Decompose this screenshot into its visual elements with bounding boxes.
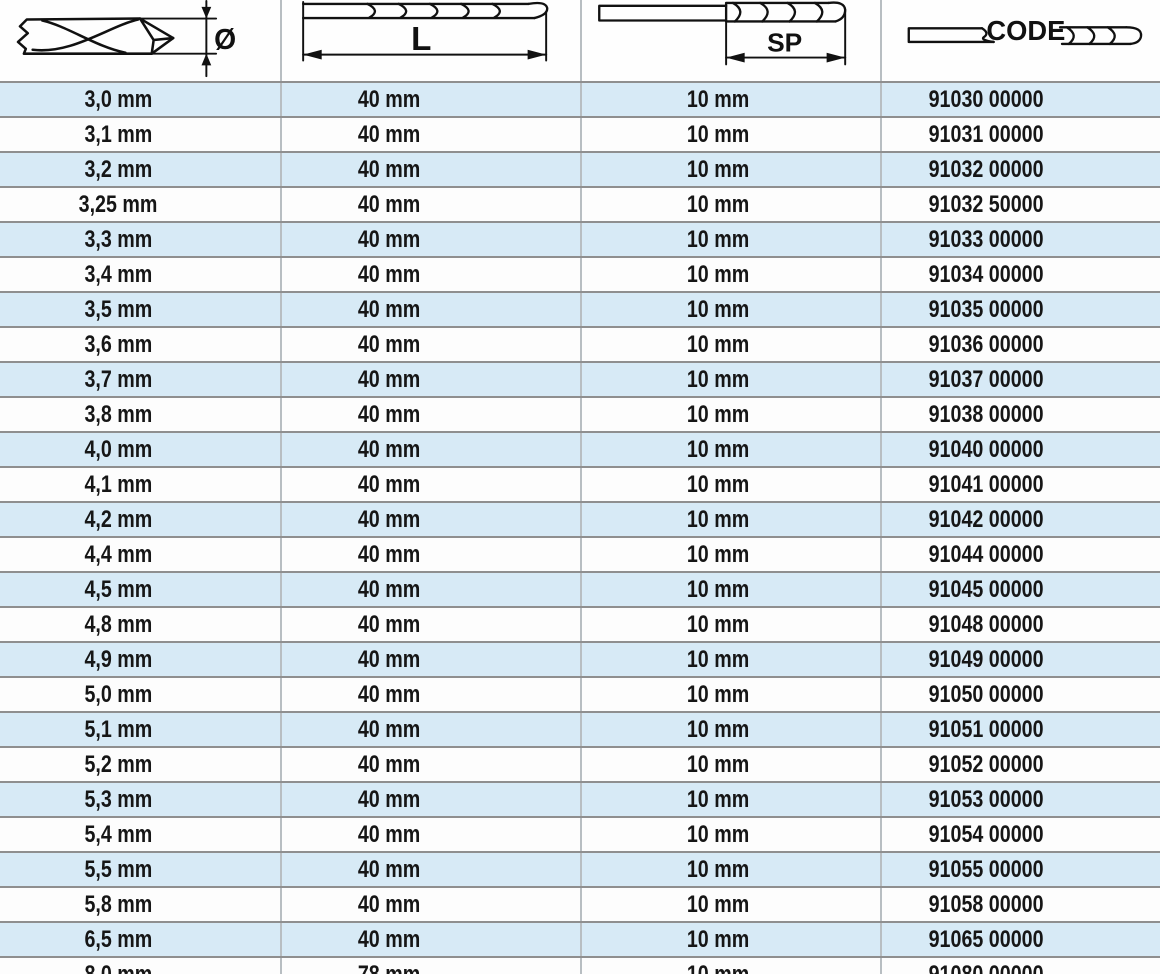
spiral-cell: 10 mm — [580, 573, 880, 606]
diameter-cell: 5,4 mm — [0, 818, 280, 851]
diameter-value: 4,5 mm — [84, 576, 152, 604]
diameter-value: 3,3 mm — [84, 226, 152, 254]
code-cell: 91042 00000 — [880, 503, 1160, 536]
diameter-cell: 8,0 mm — [0, 958, 280, 974]
diameter-cell: 4,1 mm — [0, 468, 280, 501]
code-cell: 91054 00000 — [880, 818, 1160, 851]
code-value: 91036 00000 — [929, 331, 1044, 359]
table-row: 3,8 mm 40 mm 10 mm 91038 00000 — [0, 398, 1160, 433]
spiral-cell: 10 mm — [580, 398, 880, 431]
spiral-value: 10 mm — [687, 786, 749, 814]
spiral-cell: 10 mm — [580, 538, 880, 571]
spiral-cell: 10 mm — [580, 118, 880, 151]
code-cell: 91035 00000 — [880, 293, 1160, 326]
spiral-cell: 10 mm — [580, 363, 880, 396]
dimension-arrow-left — [303, 50, 322, 60]
code-value: 91054 00000 — [929, 821, 1044, 849]
diameter-cell: 3,7 mm — [0, 363, 280, 396]
code-cell: 91040 00000 — [880, 433, 1160, 466]
length-cell: 40 mm — [280, 678, 580, 711]
spiral-value: 10 mm — [687, 156, 749, 184]
table-row: 3,1 mm 40 mm 10 mm 91031 00000 — [0, 118, 1160, 153]
diameter-cell: 3,6 mm — [0, 328, 280, 361]
table-row: 3,6 mm 40 mm 10 mm 91036 00000 — [0, 328, 1160, 363]
drill-length-drawing: L — [282, 0, 580, 81]
diameter-cell: 3,25 mm — [0, 188, 280, 221]
code-value: 91058 00000 — [929, 891, 1044, 919]
table-row: 4,1 mm 40 mm 10 mm 91041 00000 — [0, 468, 1160, 503]
code-cell: 91044 00000 — [880, 538, 1160, 571]
drill-bit-catalog-table: Ø L — [0, 0, 1160, 974]
column-header-code: CODE — [880, 0, 1160, 81]
code-cell: 91048 00000 — [880, 608, 1160, 641]
diameter-value: 5,1 mm — [84, 716, 152, 744]
code-value: 91049 00000 — [929, 646, 1044, 674]
diameter-value: 3,6 mm — [84, 331, 152, 359]
length-cell: 40 mm — [280, 223, 580, 256]
spiral-cell: 10 mm — [580, 258, 880, 291]
spiral-value: 10 mm — [687, 401, 749, 429]
length-cell: 40 mm — [280, 398, 580, 431]
diameter-value: 3,5 mm — [84, 296, 152, 324]
table-row: 3,2 mm 40 mm 10 mm 91032 00000 — [0, 153, 1160, 188]
code-value: 91051 00000 — [929, 716, 1044, 744]
code-value: 91032 50000 — [929, 191, 1044, 219]
table-row: 5,0 mm 40 mm 10 mm 91050 00000 — [0, 678, 1160, 713]
diameter-cell: 5,2 mm — [0, 748, 280, 781]
length-cell: 40 mm — [280, 433, 580, 466]
diameter-value: 4,8 mm — [84, 611, 152, 639]
code-cell: 91053 00000 — [880, 783, 1160, 816]
spiral-value: 10 mm — [687, 961, 749, 974]
spiral-value: 10 mm — [687, 681, 749, 709]
spiral-value: 10 mm — [687, 716, 749, 744]
diameter-symbol-label: Ø — [214, 23, 236, 55]
spiral-value: 10 mm — [687, 436, 749, 464]
length-cell: 40 mm — [280, 608, 580, 641]
length-value: 40 mm — [358, 156, 420, 184]
length-cell: 78 mm — [280, 958, 580, 974]
spiral-value: 10 mm — [687, 86, 749, 114]
diameter-value: 3,7 mm — [84, 366, 152, 394]
code-cell: 91038 00000 — [880, 398, 1160, 431]
table-row: 5,1 mm 40 mm 10 mm 91051 00000 — [0, 713, 1160, 748]
table-row: 8,0 mm 78 mm 10 mm 91080 00000 — [0, 958, 1160, 974]
diameter-cell: 4,8 mm — [0, 608, 280, 641]
table-row: 4,5 mm 40 mm 10 mm 91045 00000 — [0, 573, 1160, 608]
dimension-arrow-left — [726, 53, 745, 63]
spiral-cell: 10 mm — [580, 923, 880, 956]
length-cell: 40 mm — [280, 258, 580, 291]
diameter-value: 5,4 mm — [84, 821, 152, 849]
spiral-value: 10 mm — [687, 226, 749, 254]
diameter-value: 5,2 mm — [84, 751, 152, 779]
spiral-cell: 10 mm — [580, 678, 880, 711]
diameter-value: 5,0 mm — [84, 681, 152, 709]
spiral-value: 10 mm — [687, 926, 749, 954]
length-value: 40 mm — [358, 296, 420, 324]
table-row: 3,25 mm 40 mm 10 mm 91032 50000 — [0, 188, 1160, 223]
code-value: 91035 00000 — [929, 296, 1044, 324]
length-value: 40 mm — [358, 646, 420, 674]
length-value: 40 mm — [358, 86, 420, 114]
code-value: 91044 00000 — [929, 541, 1044, 569]
diameter-value: 3,0 mm — [84, 86, 152, 114]
length-value: 40 mm — [358, 681, 420, 709]
code-cell: 91058 00000 — [880, 888, 1160, 921]
code-value: 91037 00000 — [929, 366, 1044, 394]
code-cell: 91045 00000 — [880, 573, 1160, 606]
length-value: 40 mm — [358, 541, 420, 569]
diameter-value: 3,25 mm — [79, 191, 158, 219]
spiral-cell: 10 mm — [580, 153, 880, 186]
length-cell: 40 mm — [280, 118, 580, 151]
length-value: 40 mm — [358, 261, 420, 289]
table-row: 3,3 mm 40 mm 10 mm 91033 00000 — [0, 223, 1160, 258]
code-value: 91052 00000 — [929, 751, 1044, 779]
code-value: 91055 00000 — [929, 856, 1044, 884]
dimension-arrow-right — [528, 50, 547, 60]
diameter-cell: 4,5 mm — [0, 573, 280, 606]
length-cell: 40 mm — [280, 188, 580, 221]
length-cell: 40 mm — [280, 643, 580, 676]
dimension-arrow-right — [827, 53, 846, 63]
spiral-value: 10 mm — [687, 576, 749, 604]
diameter-cell: 3,0 mm — [0, 83, 280, 116]
length-value: 40 mm — [358, 821, 420, 849]
length-cell: 40 mm — [280, 538, 580, 571]
column-header-diameter: Ø — [0, 0, 280, 81]
spiral-value: 10 mm — [687, 121, 749, 149]
code-cell: 91037 00000 — [880, 363, 1160, 396]
code-value: 91041 00000 — [929, 471, 1044, 499]
length-value: 40 mm — [358, 716, 420, 744]
code-value: 91030 00000 — [929, 86, 1044, 114]
code-value: 91065 00000 — [929, 926, 1044, 954]
length-value: 40 mm — [358, 331, 420, 359]
spiral-cell: 10 mm — [580, 958, 880, 974]
diameter-value: 6,5 mm — [84, 926, 152, 954]
diameter-value: 4,9 mm — [84, 646, 152, 674]
length-value: 40 mm — [358, 226, 420, 254]
spiral-cell: 10 mm — [580, 713, 880, 746]
code-cell: 91032 50000 — [880, 188, 1160, 221]
code-value: 91048 00000 — [929, 611, 1044, 639]
spiral-value: 10 mm — [687, 331, 749, 359]
diameter-value: 3,4 mm — [84, 261, 152, 289]
diameter-cell: 5,3 mm — [0, 783, 280, 816]
code-cell: 91049 00000 — [880, 643, 1160, 676]
diameter-cell: 5,1 mm — [0, 713, 280, 746]
length-value: 40 mm — [358, 436, 420, 464]
length-cell: 40 mm — [280, 818, 580, 851]
length-cell: 40 mm — [280, 888, 580, 921]
code-cell: 91050 00000 — [880, 678, 1160, 711]
length-value: 40 mm — [358, 121, 420, 149]
diameter-cell: 3,5 mm — [0, 293, 280, 326]
diameter-cell: 6,5 mm — [0, 923, 280, 956]
table-row: 4,0 mm 40 mm 10 mm 91040 00000 — [0, 433, 1160, 468]
spiral-cell: 10 mm — [580, 783, 880, 816]
length-cell: 40 mm — [280, 853, 580, 886]
dimension-arrow-down — [201, 7, 211, 19]
diameter-value: 5,5 mm — [84, 856, 152, 884]
length-cell: 40 mm — [280, 573, 580, 606]
dimension-arrow-up — [201, 54, 211, 66]
diameter-cell: 3,2 mm — [0, 153, 280, 186]
spiral-cell: 10 mm — [580, 433, 880, 466]
diameter-cell: 5,5 mm — [0, 853, 280, 886]
code-value: 91038 00000 — [929, 401, 1044, 429]
code-cell: 91032 00000 — [880, 153, 1160, 186]
length-cell: 40 mm — [280, 468, 580, 501]
code-value: 91034 00000 — [929, 261, 1044, 289]
diameter-cell: 3,4 mm — [0, 258, 280, 291]
table-row: 3,4 mm 40 mm 10 mm 91034 00000 — [0, 258, 1160, 293]
spiral-cell: 10 mm — [580, 328, 880, 361]
code-value: 91050 00000 — [929, 681, 1044, 709]
spiral-value: 10 mm — [687, 261, 749, 289]
table-row: 4,8 mm 40 mm 10 mm 91048 00000 — [0, 608, 1160, 643]
diameter-value: 3,8 mm — [84, 401, 152, 429]
code-value: 91080 00000 — [929, 961, 1044, 974]
column-header-spiral: SP — [580, 0, 880, 81]
code-cell: 91051 00000 — [880, 713, 1160, 746]
diameter-cell: 4,9 mm — [0, 643, 280, 676]
length-value: 40 mm — [358, 366, 420, 394]
spiral-cell: 10 mm — [580, 853, 880, 886]
code-cell: 91080 00000 — [880, 958, 1160, 974]
table-row: 3,7 mm 40 mm 10 mm 91037 00000 — [0, 363, 1160, 398]
length-label: L — [411, 21, 431, 58]
length-value: 40 mm — [358, 856, 420, 884]
code-value: 91033 00000 — [929, 226, 1044, 254]
spiral-value: 10 mm — [687, 366, 749, 394]
diameter-cell: 3,3 mm — [0, 223, 280, 256]
length-value: 40 mm — [358, 891, 420, 919]
drill-spiral-drawing: SP — [582, 0, 880, 81]
table-row: 5,2 mm 40 mm 10 mm 91052 00000 — [0, 748, 1160, 783]
code-cell: 91036 00000 — [880, 328, 1160, 361]
spiral-cell: 10 mm — [580, 888, 880, 921]
length-cell: 40 mm — [280, 748, 580, 781]
diameter-value: 3,1 mm — [84, 121, 152, 149]
diameter-cell: 4,2 mm — [0, 503, 280, 536]
diameter-value: 5,8 mm — [84, 891, 152, 919]
spiral-cell: 10 mm — [580, 503, 880, 536]
table-row: 4,2 mm 40 mm 10 mm 91042 00000 — [0, 503, 1160, 538]
code-value: 91053 00000 — [929, 786, 1044, 814]
length-cell: 40 mm — [280, 783, 580, 816]
table-row: 5,4 mm 40 mm 10 mm 91054 00000 — [0, 818, 1160, 853]
diameter-value: 4,1 mm — [84, 471, 152, 499]
spiral-cell: 10 mm — [580, 818, 880, 851]
diameter-cell: 4,4 mm — [0, 538, 280, 571]
spiral-value: 10 mm — [687, 821, 749, 849]
spiral-value: 10 mm — [687, 541, 749, 569]
length-value: 40 mm — [358, 926, 420, 954]
table-row: 6,5 mm 40 mm 10 mm 91065 00000 — [0, 923, 1160, 958]
spiral-label: SP — [767, 28, 802, 58]
table-row: 5,8 mm 40 mm 10 mm 91058 00000 — [0, 888, 1160, 923]
code-value: 91031 00000 — [929, 121, 1044, 149]
spiral-cell: 10 mm — [580, 223, 880, 256]
spiral-value: 10 mm — [687, 471, 749, 499]
code-cell: 91055 00000 — [880, 853, 1160, 886]
spiral-cell: 10 mm — [580, 83, 880, 116]
length-cell: 40 mm — [280, 153, 580, 186]
diameter-cell: 4,0 mm — [0, 433, 280, 466]
length-cell: 40 mm — [280, 293, 580, 326]
table-row: 3,0 mm 40 mm 10 mm 91030 00000 — [0, 83, 1160, 118]
code-value: 91032 00000 — [929, 156, 1044, 184]
table-row: 4,4 mm 40 mm 10 mm 91044 00000 — [0, 538, 1160, 573]
code-cell: 91065 00000 — [880, 923, 1160, 956]
code-label: CODE — [986, 15, 1065, 46]
code-cell: 91033 00000 — [880, 223, 1160, 256]
spiral-value: 10 mm — [687, 646, 749, 674]
drill-diameter-drawing: Ø — [0, 0, 280, 81]
code-value: 91045 00000 — [929, 576, 1044, 604]
length-cell: 40 mm — [280, 363, 580, 396]
spiral-value: 10 mm — [687, 506, 749, 534]
diameter-cell: 5,8 mm — [0, 888, 280, 921]
code-cell: 91034 00000 — [880, 258, 1160, 291]
code-cell: 91041 00000 — [880, 468, 1160, 501]
spiral-cell: 10 mm — [580, 188, 880, 221]
length-value: 40 mm — [358, 751, 420, 779]
column-header-length: L — [280, 0, 580, 81]
length-cell: 40 mm — [280, 503, 580, 536]
drill-code-drawing: CODE — [882, 0, 1160, 81]
spiral-value: 10 mm — [687, 191, 749, 219]
spiral-value: 10 mm — [687, 296, 749, 324]
spiral-cell: 10 mm — [580, 643, 880, 676]
spiral-cell: 10 mm — [580, 748, 880, 781]
table-row: 5,5 mm 40 mm 10 mm 91055 00000 — [0, 853, 1160, 888]
table-body: 3,0 mm 40 mm 10 mm 91030 00000 3,1 mm 40… — [0, 83, 1160, 974]
spiral-cell: 10 mm — [580, 608, 880, 641]
diameter-value: 8,0 mm — [84, 961, 152, 974]
code-cell: 91052 00000 — [880, 748, 1160, 781]
length-cell: 40 mm — [280, 83, 580, 116]
table-header: Ø L — [0, 0, 1160, 83]
length-value: 40 mm — [358, 786, 420, 814]
spiral-cell: 10 mm — [580, 293, 880, 326]
code-cell: 91030 00000 — [880, 83, 1160, 116]
diameter-value: 3,2 mm — [84, 156, 152, 184]
table-row: 3,5 mm 40 mm 10 mm 91035 00000 — [0, 293, 1160, 328]
length-value: 40 mm — [358, 471, 420, 499]
diameter-cell: 5,0 mm — [0, 678, 280, 711]
table-row: 5,3 mm 40 mm 10 mm 91053 00000 — [0, 783, 1160, 818]
spiral-value: 10 mm — [687, 751, 749, 779]
table-row: 4,9 mm 40 mm 10 mm 91049 00000 — [0, 643, 1160, 678]
diameter-value: 4,2 mm — [84, 506, 152, 534]
length-cell: 40 mm — [280, 713, 580, 746]
diameter-value: 4,4 mm — [84, 541, 152, 569]
length-cell: 40 mm — [280, 923, 580, 956]
length-value: 40 mm — [358, 506, 420, 534]
code-value: 91042 00000 — [929, 506, 1044, 534]
diameter-value: 5,3 mm — [84, 786, 152, 814]
code-value: 91040 00000 — [929, 436, 1044, 464]
length-value: 40 mm — [358, 191, 420, 219]
length-value: 78 mm — [358, 961, 420, 974]
spiral-value: 10 mm — [687, 856, 749, 884]
diameter-value: 4,0 mm — [84, 436, 152, 464]
length-value: 40 mm — [358, 576, 420, 604]
length-value: 40 mm — [358, 611, 420, 639]
diameter-cell: 3,1 mm — [0, 118, 280, 151]
spiral-cell: 10 mm — [580, 468, 880, 501]
length-cell: 40 mm — [280, 328, 580, 361]
diameter-cell: 3,8 mm — [0, 398, 280, 431]
spiral-value: 10 mm — [687, 611, 749, 639]
length-value: 40 mm — [358, 401, 420, 429]
spiral-value: 10 mm — [687, 891, 749, 919]
code-cell: 91031 00000 — [880, 118, 1160, 151]
